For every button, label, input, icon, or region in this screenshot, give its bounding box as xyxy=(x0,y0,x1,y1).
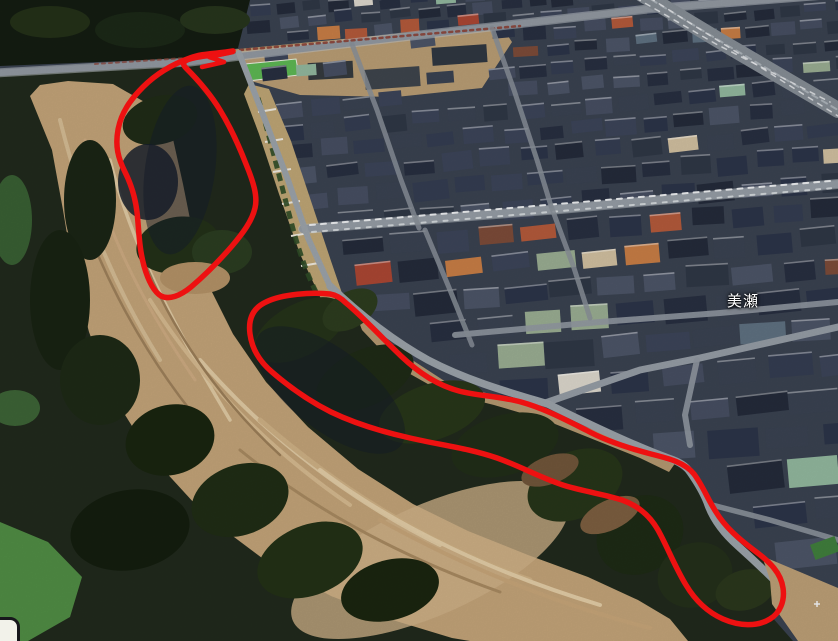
place-label[interactable]: 美瀬 xyxy=(727,290,759,311)
map-viewport[interactable]: 美瀬 xyxy=(0,0,838,641)
photo-grain xyxy=(0,0,838,641)
aerial-view-canvas[interactable] xyxy=(0,0,838,641)
partial-ui-card[interactable] xyxy=(0,617,20,641)
